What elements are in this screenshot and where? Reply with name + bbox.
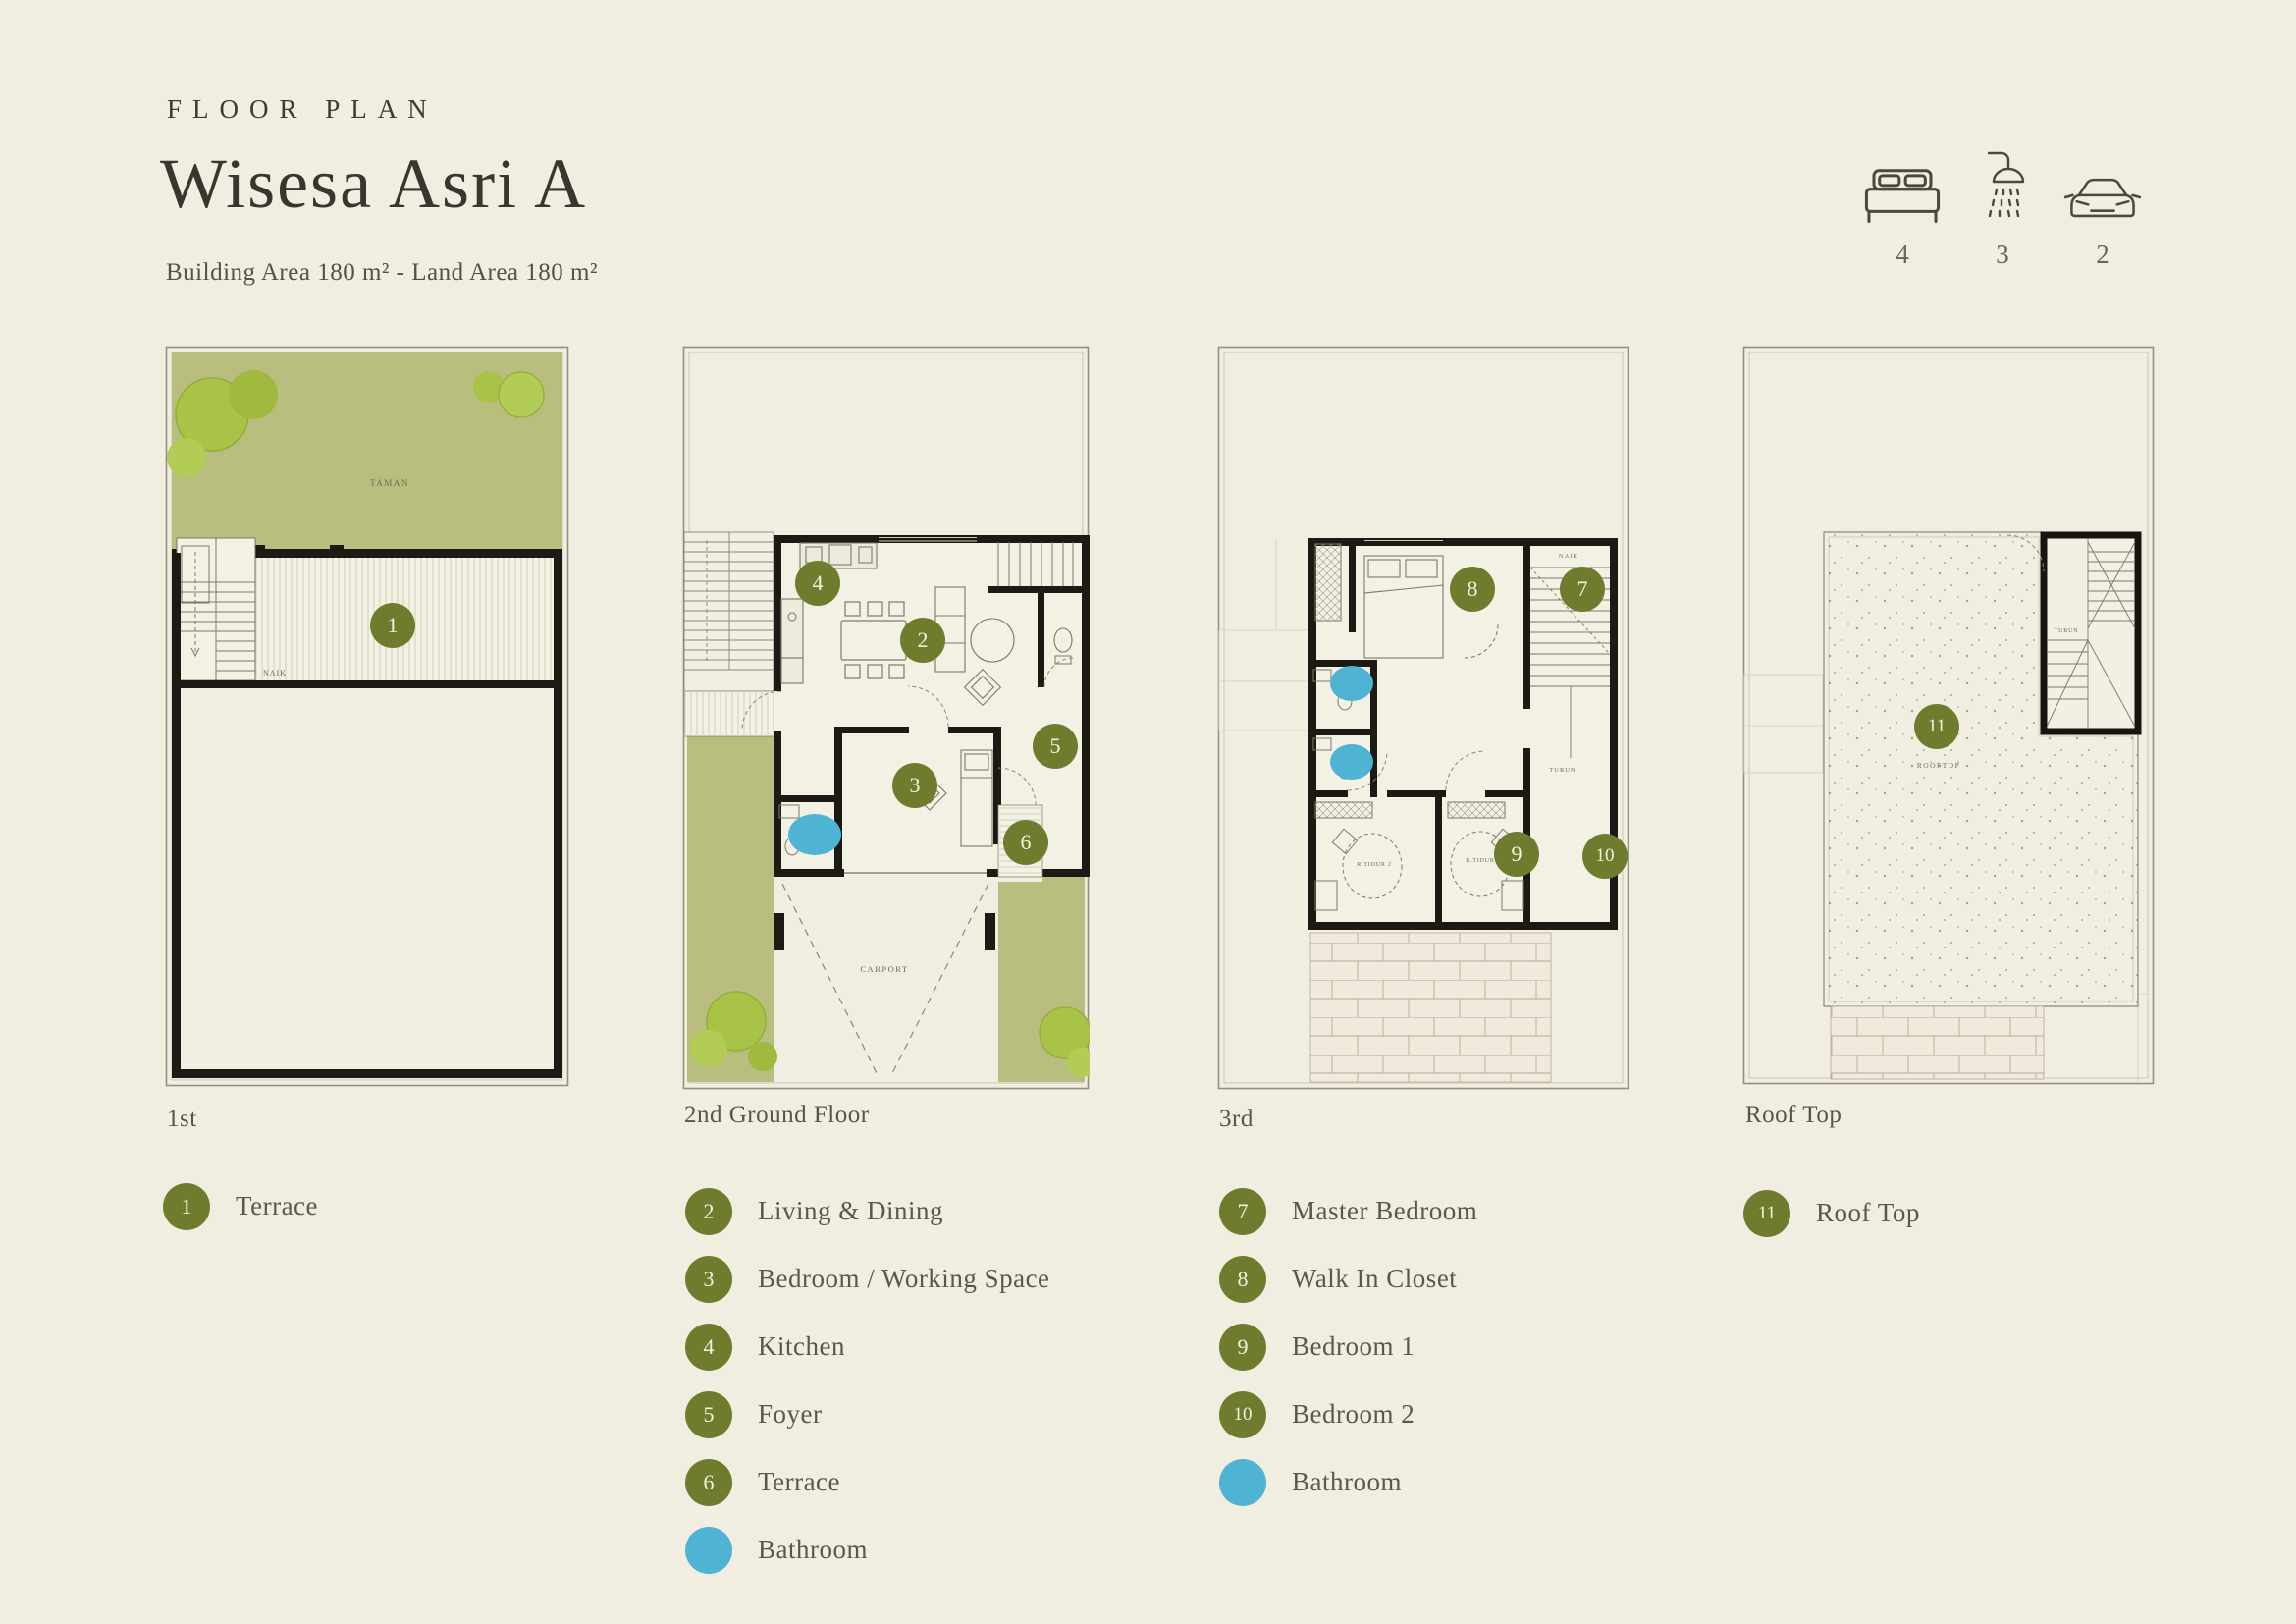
bathroom-marker (788, 814, 841, 855)
legend-marker: 11 (1743, 1190, 1790, 1237)
legend-label: Bathroom (758, 1535, 868, 1565)
plan-2nd-caption: 2nd Ground Floor (684, 1102, 870, 1129)
legend-label: Kitchen (758, 1331, 845, 1362)
stairs-down-label: TURUN (2055, 628, 2079, 634)
legend-marker: 9 (1219, 1324, 1266, 1371)
room-marker: 5 (1033, 724, 1078, 769)
legend-label: Roof Top (1816, 1198, 1920, 1228)
plan-3rd-drawing: NAIK TURUN (1217, 346, 1629, 1090)
legend-marker: 8 (1219, 1256, 1266, 1303)
shower-icon (1975, 145, 2030, 224)
plan-1st: TAMAN NAIK (165, 346, 569, 1087)
stat-bathrooms: 3 (1952, 145, 2053, 270)
legend-rooftop: 11 Roof Top (1743, 1179, 1920, 1247)
legend-item: 10 Bedroom 2 (1219, 1380, 1477, 1448)
legend-item: 2 Living & Dining (685, 1177, 1050, 1245)
unit-stats: 4 3 (1852, 145, 2153, 270)
legend-3rd: 7 Master Bedroom 8 Walk In Closet 9 Bedr… (1219, 1177, 1477, 1516)
legend-item: Bathroom (685, 1516, 1050, 1584)
legend-marker: 5 (685, 1391, 732, 1438)
legend-item: 3 Bedroom / Working Space (685, 1245, 1050, 1313)
legend-label: Master Bedroom (1292, 1196, 1477, 1226)
plan-1st-drawing: TAMAN NAIK (165, 346, 569, 1087)
room-marker: 1 (370, 603, 415, 648)
bathroom-marker (1330, 744, 1373, 780)
legend-label: Bedroom / Working Space (758, 1264, 1050, 1294)
legend-item: 9 Bedroom 1 (1219, 1313, 1477, 1380)
legend-marker: 7 (1219, 1188, 1266, 1235)
room-marker: 11 (1914, 704, 1959, 749)
plan-2nd-ground: CARPORT 4 2 3 5 6 (682, 346, 1090, 1090)
garden-label: TAMAN (370, 478, 409, 488)
legend-label: Living & Dining (758, 1196, 943, 1226)
bedroom2-room-label: R.TIDUR 2 (1357, 862, 1392, 868)
room-marker: 6 (1003, 820, 1048, 865)
bed-icon (1859, 145, 1946, 224)
legend-item: 11 Roof Top (1743, 1179, 1920, 1247)
legend-item: 4 Kitchen (685, 1313, 1050, 1380)
carport-count: 2 (2096, 240, 2109, 270)
legend-1st: 1 Terrace (163, 1172, 318, 1240)
bathroom-marker (1330, 666, 1373, 701)
stat-bedrooms: 4 (1852, 145, 1952, 270)
legend-marker: 1 (163, 1183, 210, 1230)
legend-item: 5 Foyer (685, 1380, 1050, 1448)
legend-marker: 3 (685, 1256, 732, 1303)
legend-marker: 2 (685, 1188, 732, 1235)
room-marker: 9 (1494, 832, 1539, 877)
legend-label: Bathroom (1292, 1467, 1402, 1497)
room-marker: 8 (1450, 567, 1495, 612)
page-title: Wisesa Asri A (160, 143, 587, 225)
bedroom-count: 4 (1896, 240, 1909, 270)
plan-rooftop-caption: Roof Top (1745, 1102, 1842, 1129)
legend-2nd: 2 Living & Dining 3 Bedroom / Working Sp… (685, 1177, 1050, 1584)
room-marker: 2 (900, 618, 945, 663)
legend-item: Bathroom (1219, 1448, 1477, 1516)
plan-rooftop: TURUN ROOFTOP 11 (1742, 346, 2155, 1085)
stairs-up-label: NAIK (263, 669, 287, 677)
legend-label: Foyer (758, 1399, 823, 1430)
legend-item: 6 Terrace (685, 1448, 1050, 1516)
legend-bathroom-marker (685, 1527, 732, 1574)
bathroom-count: 3 (1996, 240, 2009, 270)
legend-label: Walk In Closet (1292, 1264, 1457, 1294)
legend-item: 8 Walk In Closet (1219, 1245, 1477, 1313)
room-marker: 4 (795, 561, 840, 606)
page-eyebrow: FLOOR PLAN (167, 94, 438, 125)
legend-item: 1 Terrace (163, 1172, 318, 1240)
legend-marker: 10 (1219, 1391, 1266, 1438)
bedroom1-room-label: R.TIDUR (1466, 858, 1494, 864)
legend-bathroom-marker (1219, 1459, 1266, 1506)
room-marker: 7 (1560, 567, 1605, 612)
rooftop-label: ROOFTOP (1917, 761, 1961, 770)
plan-1st-caption: 1st (167, 1106, 197, 1133)
plan-3rd-caption: 3rd (1219, 1106, 1254, 1133)
legend-marker: 6 (685, 1459, 732, 1506)
legend-label: Bedroom 2 (1292, 1399, 1415, 1430)
stat-carports: 2 (2053, 145, 2153, 270)
stairs-up-label: NAIK (1559, 553, 1578, 560)
legend-label: Bedroom 1 (1292, 1331, 1415, 1362)
plan-2nd-drawing: CARPORT (682, 346, 1090, 1090)
room-marker: 10 (1582, 834, 1628, 879)
legend-label: Terrace (758, 1467, 840, 1497)
legend-marker: 4 (685, 1324, 732, 1371)
legend-label: Terrace (236, 1191, 318, 1221)
carport-label: CARPORT (860, 964, 908, 974)
plan-3rd: NAIK TURUN (1217, 346, 1629, 1090)
floor-plan-page: FLOOR PLAN Wisesa Asri A Building Area 1… (0, 0, 2296, 1624)
page-subtitle: Building Area 180 m² - Land Area 180 m² (166, 259, 598, 287)
room-marker: 3 (892, 763, 937, 808)
stairs-down-label: TURUN (1549, 767, 1575, 774)
legend-item: 7 Master Bedroom (1219, 1177, 1477, 1245)
car-icon (2063, 145, 2142, 224)
